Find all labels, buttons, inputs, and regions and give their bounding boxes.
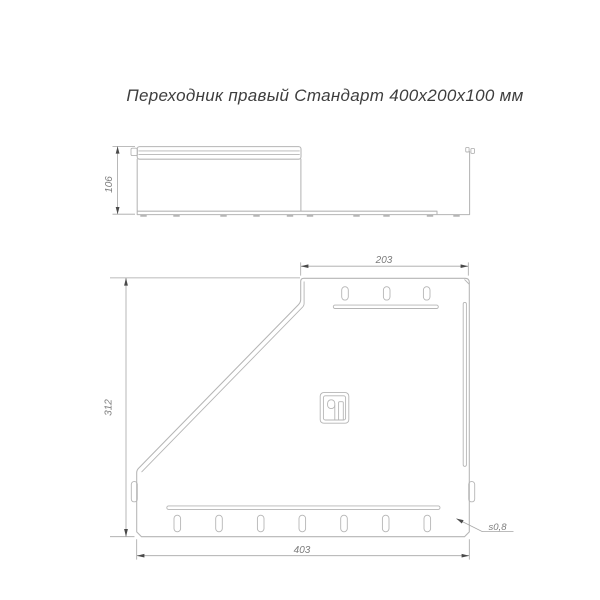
dimension-106-lines bbox=[113, 146, 136, 214]
side-view-right-tab bbox=[471, 148, 475, 153]
stamp-glyph-strokes bbox=[335, 402, 344, 420]
slot bbox=[423, 287, 430, 300]
stamp-glyph-loop bbox=[328, 400, 335, 409]
arrow-left-icon bbox=[301, 264, 309, 268]
dimension-bottom-width-403: 403 bbox=[137, 539, 470, 559]
drawing-canvas: Переходник правый Стандарт 400х200х100 м… bbox=[0, 0, 600, 600]
dimension-side-height-312: 312 bbox=[104, 278, 301, 537]
side-view-right-tab-notch bbox=[466, 147, 469, 152]
slot bbox=[257, 515, 264, 532]
slot bbox=[174, 515, 181, 532]
arrow-down-icon bbox=[116, 207, 120, 214]
dim-203-label: 203 bbox=[375, 255, 393, 266]
dimension-height-106: 106 bbox=[104, 146, 135, 214]
dim-106-label: 106 bbox=[104, 176, 115, 193]
side-view-flange-lines bbox=[139, 151, 300, 155]
plan-top-rib bbox=[333, 305, 438, 308]
slot bbox=[341, 515, 348, 532]
arrow-right-icon bbox=[462, 554, 470, 558]
technical-drawing: 106 bbox=[0, 0, 600, 600]
mounting-slots-bottom bbox=[174, 515, 431, 532]
slot bbox=[299, 515, 306, 532]
thickness-callout: s0,8 bbox=[456, 519, 513, 533]
arrow-right-icon bbox=[461, 264, 469, 268]
side-view-flange bbox=[137, 147, 301, 160]
manufacturer-stamp-icon bbox=[320, 393, 349, 424]
dim-312-label: 312 bbox=[104, 399, 115, 416]
arrow-leader-icon bbox=[456, 519, 463, 524]
plan-view: 203 312 403 s0,8 bbox=[104, 255, 514, 560]
slot bbox=[383, 287, 390, 300]
dimension-top-width-203: 203 bbox=[301, 255, 469, 276]
slot bbox=[342, 287, 349, 300]
side-view: 106 bbox=[104, 146, 475, 215]
side-view-body-outline bbox=[137, 152, 469, 215]
plan-bottom-rib bbox=[167, 506, 440, 510]
arrow-up-icon bbox=[116, 146, 120, 153]
dim-403-label: 403 bbox=[294, 545, 311, 556]
mounting-slots-top bbox=[342, 287, 430, 300]
thickness-label: s0,8 bbox=[489, 522, 508, 533]
arrow-up-icon bbox=[124, 278, 128, 286]
plan-outline bbox=[137, 278, 470, 536]
slot bbox=[216, 515, 223, 532]
slot bbox=[424, 515, 431, 532]
arrow-down-icon bbox=[124, 529, 128, 537]
arrow-left-icon bbox=[137, 554, 145, 558]
slot bbox=[382, 515, 389, 532]
side-view-left-tab bbox=[131, 148, 137, 155]
plan-right-rib bbox=[463, 302, 466, 466]
plan-bend-line bbox=[142, 282, 304, 472]
